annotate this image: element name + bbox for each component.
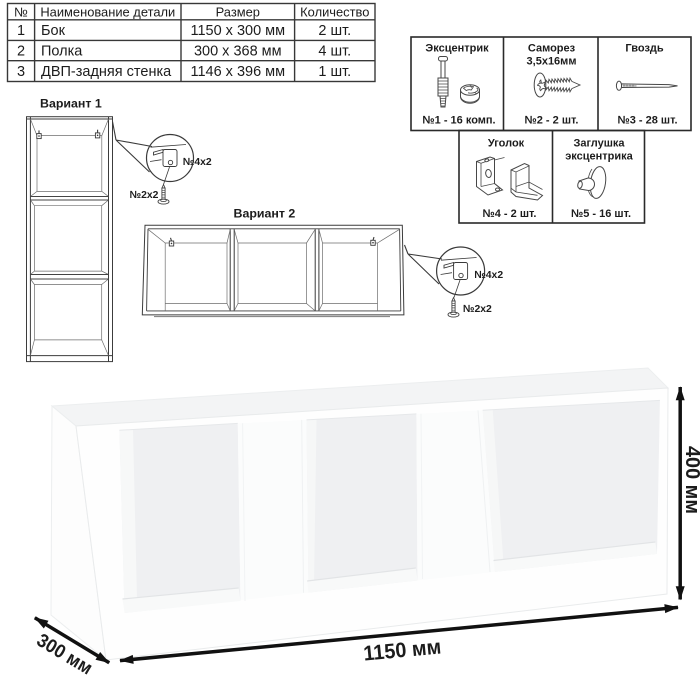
svg-text:№2х2: №2х2 [463,304,492,315]
svg-text:400 мм: 400 мм [681,446,700,514]
svg-text:Вариант 2: Вариант 2 [234,206,296,220]
svg-text:Бок: Бок [41,23,66,39]
svg-text:1150 x 300 мм: 1150 x 300 мм [190,23,285,39]
svg-text:Количество: Количество [300,4,369,19]
svg-text:№3 - 28 шт.: №3 - 28 шт. [617,115,677,127]
svg-text:4 шт.: 4 шт. [318,43,351,59]
svg-text:Саморез: Саморез [528,43,576,55]
svg-text:Эксцентрик: Эксцентрик [425,43,489,55]
svg-text:Полка: Полка [41,43,83,59]
svg-text:№2х2: №2х2 [130,190,159,201]
svg-text:3: 3 [17,64,25,80]
svg-text:Уголок: Уголок [488,138,525,150]
svg-text:Наименование детали: Наименование детали [40,4,175,19]
svg-text:Заглушка: Заглушка [573,138,625,150]
svg-text:Гвоздь: Гвоздь [625,43,664,55]
svg-text:эксцентрика: эксцентрика [565,151,633,163]
svg-text:1 шт.: 1 шт. [318,64,351,80]
svg-text:1146 x 396 мм: 1146 x 396 мм [190,64,285,80]
svg-text:2 шт.: 2 шт. [318,23,351,39]
svg-text:№1 - 16 комп.: №1 - 16 комп. [422,115,495,127]
svg-text:1150 мм: 1150 мм [362,635,442,665]
svg-text:№: № [14,4,28,19]
svg-text:2: 2 [17,43,25,59]
svg-text:№4х2: №4х2 [183,157,212,168]
svg-text:Размер: Размер [216,4,260,19]
svg-text:№5 - 16 шт.: №5 - 16 шт. [571,208,631,220]
svg-text:ДВП-задняя стенка: ДВП-задняя стенка [41,64,172,80]
svg-text:№2 - 2 шт.: №2 - 2 шт. [525,115,579,127]
svg-text:Вариант 1: Вариант 1 [40,97,102,111]
svg-text:№4 - 2 шт.: №4 - 2 шт. [483,208,537,220]
svg-text:1: 1 [17,23,25,39]
svg-text:№4х2: №4х2 [474,270,503,281]
svg-text:300 x 368 мм: 300 x 368 мм [194,43,282,59]
svg-text:3,5х16мм: 3,5х16мм [527,56,577,68]
